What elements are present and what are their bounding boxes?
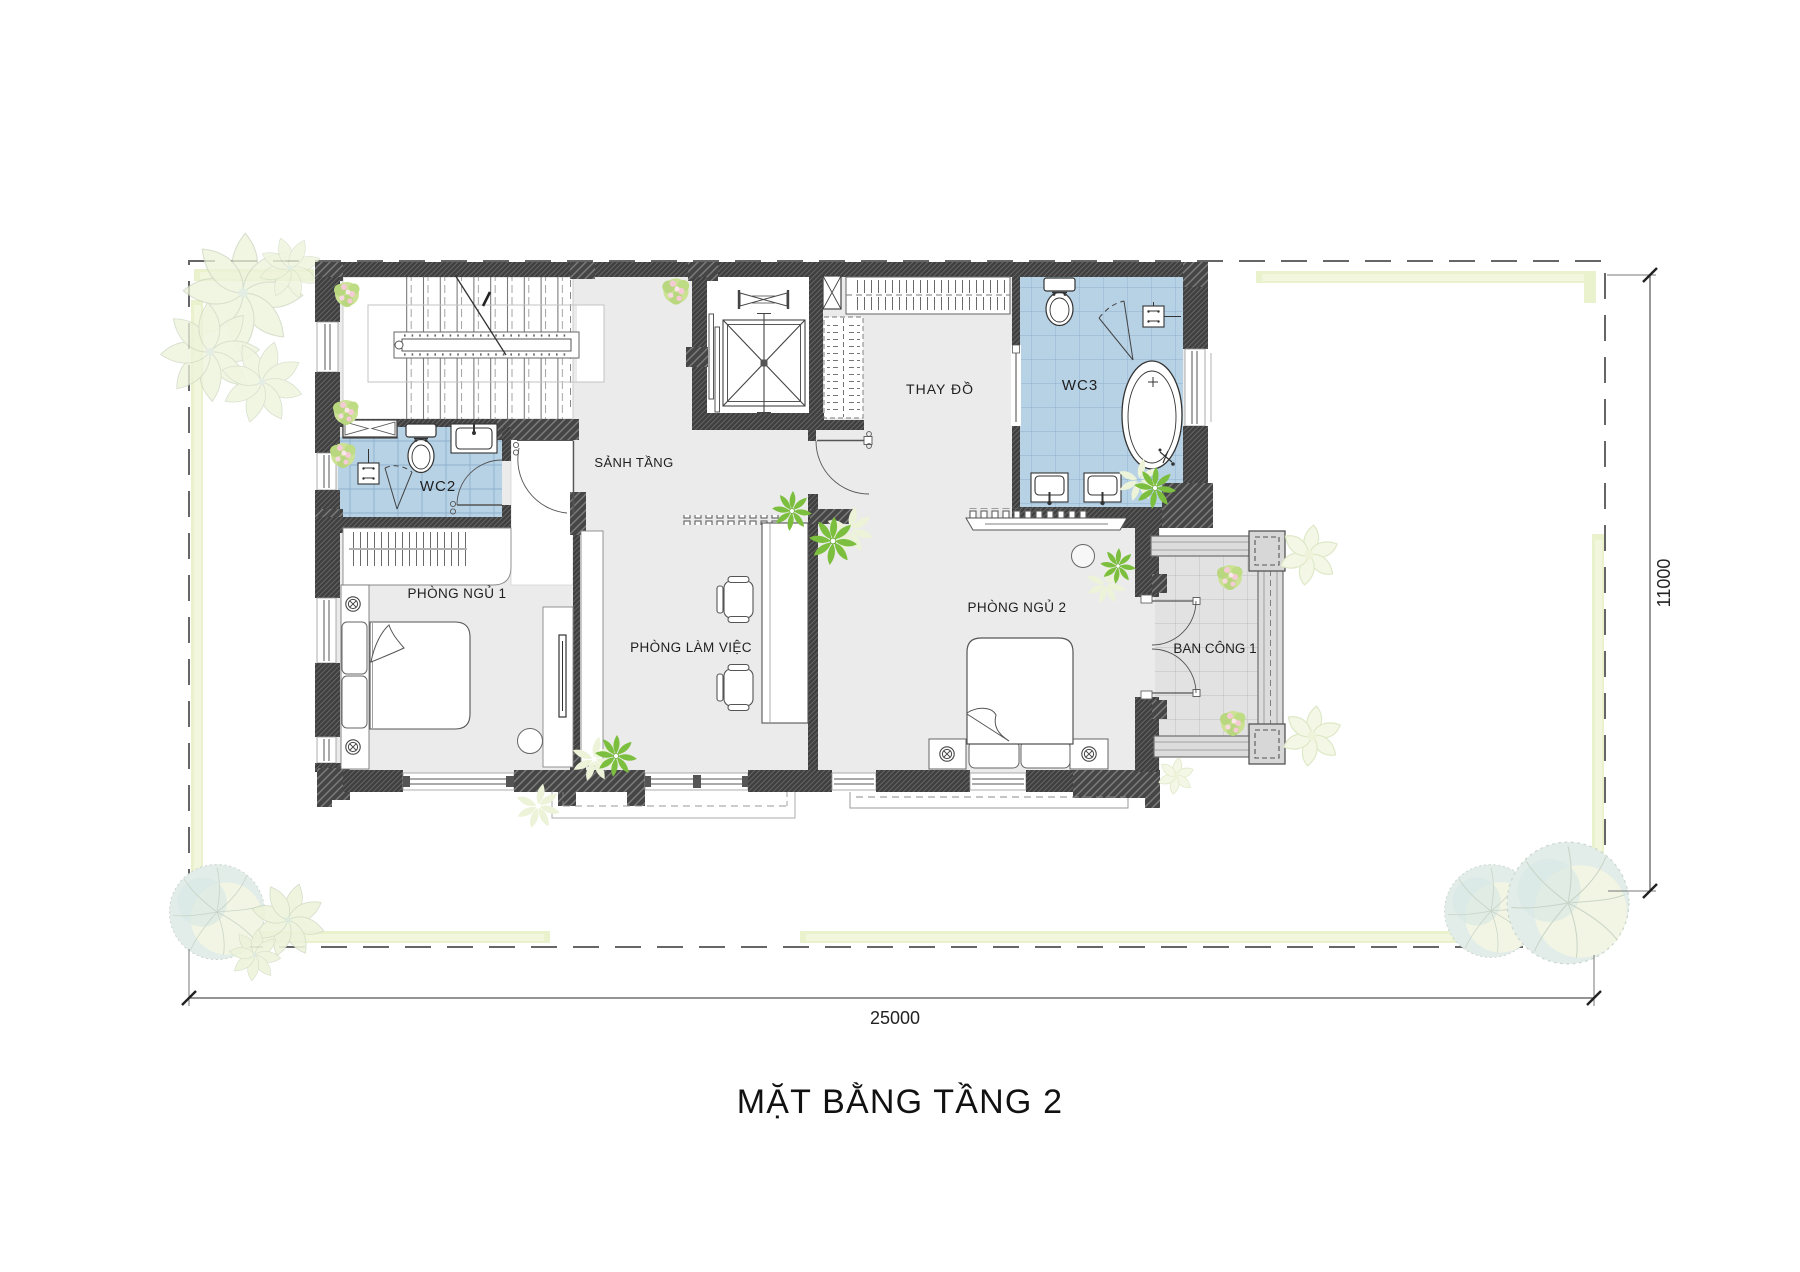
svg-text:MẶT BẰNG TẦNG 2: MẶT BẰNG TẦNG 2 xyxy=(737,1083,1064,1121)
svg-text:25000: 25000 xyxy=(870,1008,920,1028)
svg-text:BAN CÔNG 1: BAN CÔNG 1 xyxy=(1173,641,1256,656)
svg-text:11000: 11000 xyxy=(1654,559,1674,608)
svg-text:SẢNH TẦNG: SẢNH TẦNG xyxy=(594,455,673,470)
svg-text:PHÒNG LÀM VIỆC: PHÒNG LÀM VIỆC xyxy=(630,640,752,655)
svg-text:WC2: WC2 xyxy=(420,478,456,495)
svg-text:PHÒNG NGỦ 1: PHÒNG NGỦ 1 xyxy=(408,586,507,601)
svg-text:PHÒNG NGỦ 2: PHÒNG NGỦ 2 xyxy=(968,600,1067,615)
svg-text:WC3: WC3 xyxy=(1062,377,1098,394)
svg-text:THAY ĐỒ: THAY ĐỒ xyxy=(906,380,974,397)
